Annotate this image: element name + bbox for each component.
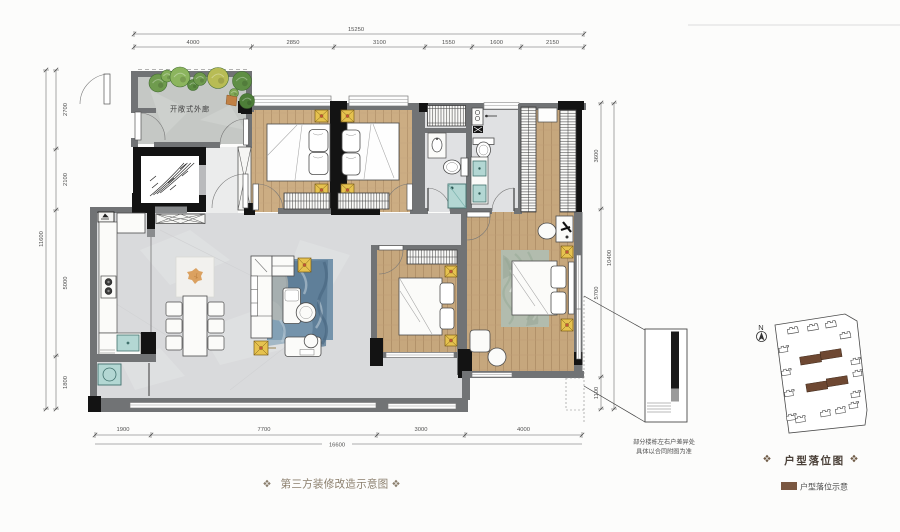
svg-text:1550: 1550 — [442, 40, 455, 46]
svg-text:1600: 1600 — [490, 40, 503, 46]
svg-text:1100: 1100 — [594, 387, 600, 399]
svg-text:1800: 1800 — [63, 376, 69, 389]
svg-text:开敞式外廊: 开敞式外廊 — [170, 105, 210, 114]
svg-text:11600: 11600 — [39, 231, 45, 247]
svg-text:4000: 4000 — [187, 40, 200, 46]
svg-text:3000: 3000 — [415, 427, 428, 433]
svg-text:N: N — [758, 323, 763, 332]
svg-text:户型落位图: 户型落位图 — [783, 454, 845, 467]
svg-text:5000: 5000 — [63, 277, 69, 290]
svg-text:5700: 5700 — [594, 287, 600, 300]
svg-text:具体以合同附图为准: 具体以合同附图为准 — [636, 448, 692, 456]
svg-text:第三方装修改造示意图: 第三方装修改造示意图 — [281, 478, 389, 491]
svg-text:16600: 16600 — [329, 443, 345, 449]
svg-text:1900: 1900 — [117, 427, 130, 433]
svg-text:3100: 3100 — [373, 40, 386, 46]
svg-text:2150: 2150 — [546, 40, 559, 46]
svg-text:户型落位示意: 户型落位示意 — [800, 482, 848, 492]
svg-text:部分楼栋左右户差异处: 部分楼栋左右户差异处 — [633, 438, 695, 446]
svg-text:2850: 2850 — [287, 40, 300, 46]
svg-text:2100: 2100 — [63, 173, 69, 186]
svg-text:4000: 4000 — [517, 427, 530, 433]
svg-text:10400: 10400 — [607, 250, 613, 266]
svg-text:7700: 7700 — [258, 427, 271, 433]
svg-text:2700: 2700 — [63, 103, 69, 116]
svg-text:3600: 3600 — [594, 150, 600, 163]
svg-text:15250: 15250 — [348, 27, 364, 33]
